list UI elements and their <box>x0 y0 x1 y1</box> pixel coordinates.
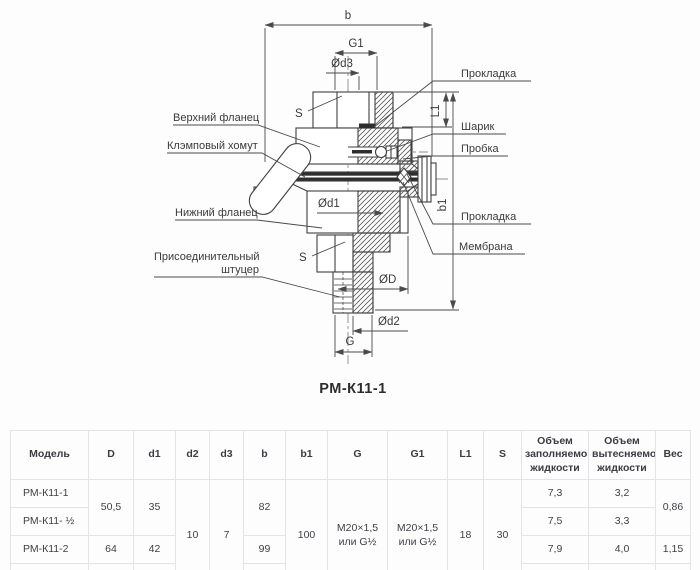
plug-head <box>418 156 431 202</box>
col-header-S: S <box>484 431 522 480</box>
col-header-displaced-volume: Объем вытесняемой жидкости <box>589 431 656 480</box>
callout-upper-flange: Верхний фланец <box>173 112 260 124</box>
drawing-title: РМ-К11-1 <box>319 381 386 397</box>
cell-b: 99 <box>244 536 286 564</box>
dim-s-bottom-label: S <box>299 252 307 264</box>
cell-fill-volume: 7,5 <box>522 508 589 536</box>
col-header-b: b <box>244 431 286 480</box>
dim-g1-label: G1 <box>348 38 363 50</box>
cell-d1: 35 <box>134 480 176 536</box>
cell-D: 77,5 <box>89 564 134 570</box>
cell-model: РМ-К11-1 <box>11 480 89 508</box>
dim-d3-label: Ød3 <box>331 58 353 70</box>
cell-model: РМ-К11- ½ <box>11 508 89 536</box>
col-header-d2: d2 <box>176 431 210 480</box>
col-header-G: G <box>328 431 388 480</box>
cell-model: РМ-К11-2 <box>11 536 89 564</box>
col-header-weight: Вес <box>656 431 691 480</box>
cell-d3: 7 <box>210 480 244 570</box>
dim-d1-label: Ød1 <box>318 198 340 210</box>
cell-b: 112 <box>244 564 286 570</box>
callout-ball: Шарик <box>461 121 494 133</box>
col-header-model: Модель <box>11 431 89 480</box>
cell-displaced-volume: 4,0 <box>589 536 656 564</box>
cell-D: 64 <box>89 536 134 564</box>
col-header-fill-volume: Объем заполняемой жидкости <box>522 431 589 480</box>
col-header-L1: L1 <box>448 431 484 480</box>
col-header-D: D <box>89 431 134 480</box>
callout-gasket-bottom: Прокладка <box>461 211 517 223</box>
cell-weight: 1,15 <box>656 536 691 564</box>
dim-g-label: G <box>346 336 355 348</box>
cell-b: 82 <box>244 480 286 536</box>
cell-displaced-volume: 4,1 <box>589 564 656 570</box>
page: b G1 Ød3 S L1 b1 Ød1 S ØD Ød2 G Верхний … <box>0 0 700 570</box>
cell-weight: 1,61 <box>656 564 691 570</box>
cell-weight: 0,86 <box>656 480 691 536</box>
dim-l1-label: L1 <box>430 105 442 118</box>
col-header-d1: d1 <box>134 431 176 480</box>
callout-membrane: Мембрана <box>459 241 513 253</box>
cell-D: 50,5 <box>89 480 134 536</box>
table-header-row: Модель D d1 d2 d3 b b1 G G1 L1 S Объем з… <box>11 431 691 480</box>
callout-clamp: Клэмповый хомут <box>167 140 258 152</box>
dim-D-label: ØD <box>379 274 396 286</box>
cell-S: 30 <box>484 480 522 570</box>
cell-G1: M20×1,5 или G½ <box>388 480 448 570</box>
technical-drawing: b G1 Ød3 S L1 b1 Ød1 S ØD Ød2 G Верхний … <box>0 0 700 410</box>
gasket-top-part <box>359 124 375 129</box>
col-header-b1: b1 <box>286 431 328 480</box>
col-header-G1: G1 <box>388 431 448 480</box>
callout-fitting-line1: Присоединительный <box>154 251 260 263</box>
cell-fill-volume: 7,3 <box>522 480 589 508</box>
callout-fitting-line2: штуцер <box>221 264 259 276</box>
cell-G: M20×1,5 или G½ <box>328 480 388 570</box>
ball-part <box>376 147 387 158</box>
cell-L1: 18 <box>448 480 484 570</box>
cell-b1: 100 <box>286 480 328 570</box>
dim-b1-label: b1 <box>437 199 449 212</box>
cell-d2: 10 <box>176 480 210 570</box>
table-row: РМ-К11-1 50,5 35 10 7 82 100 M20×1,5 или… <box>11 480 691 508</box>
cell-d1: 58 <box>134 564 176 570</box>
cell-d1: 42 <box>134 536 176 564</box>
dim-d2-label: Ød2 <box>378 316 400 328</box>
callout-plug: Пробка <box>461 143 499 155</box>
callout-gasket-top: Прокладка <box>461 68 517 80</box>
callout-lower-flange: Нижний фланец <box>175 207 258 219</box>
cell-fill-volume: 8,5 <box>522 564 589 570</box>
cell-displaced-volume: 3,2 <box>589 480 656 508</box>
dim-b-label: b <box>345 10 351 22</box>
dim-s-top-label: S <box>295 108 303 120</box>
cell-fill-volume: 7,9 <box>522 536 589 564</box>
cell-model: РМ-К11- ½ <box>11 564 89 570</box>
specs-table: Модель D d1 d2 d3 b b1 G G1 L1 S Объем з… <box>10 430 691 570</box>
cell-displaced-volume: 3,3 <box>589 508 656 536</box>
col-header-d3: d3 <box>210 431 244 480</box>
